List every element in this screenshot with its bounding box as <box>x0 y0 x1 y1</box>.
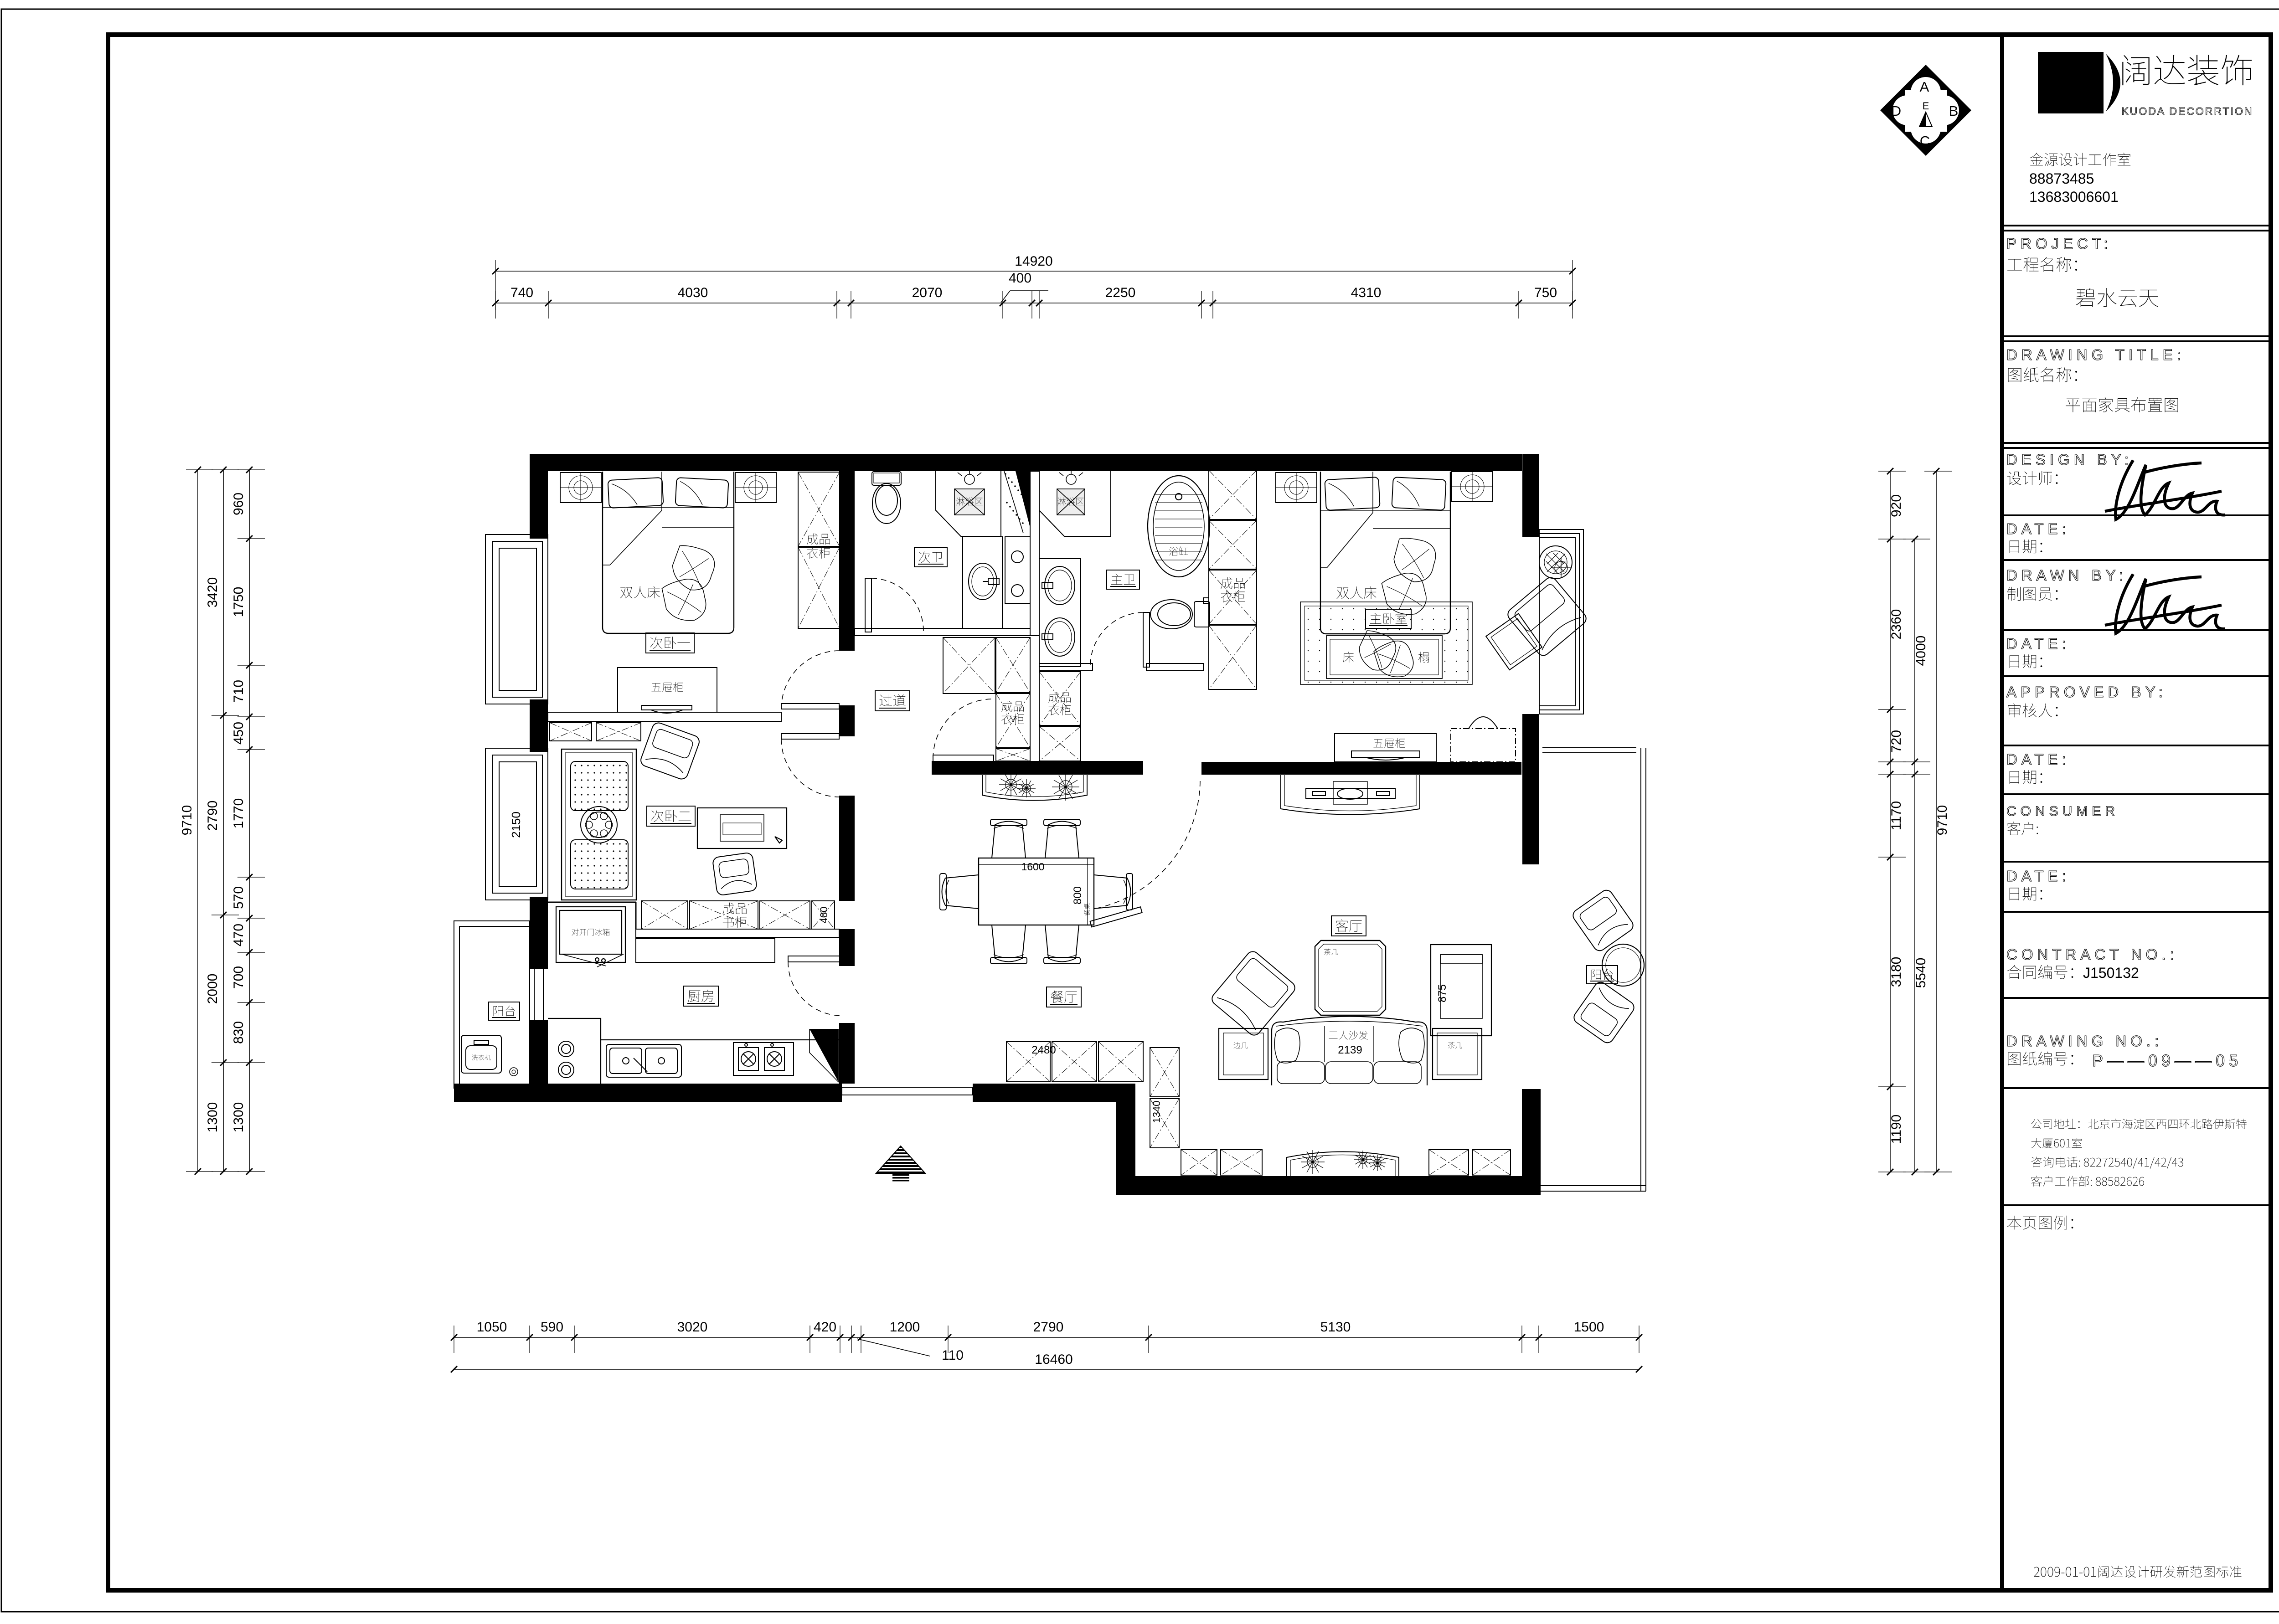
svg-text:DRAWN BY:: DRAWN BY: <box>2006 567 2127 584</box>
svg-text:1500: 1500 <box>1574 1320 1604 1335</box>
svg-text:700: 700 <box>231 966 246 989</box>
svg-text:CONTRACT NO.:: CONTRACT NO.: <box>2006 946 2178 963</box>
svg-text:1600: 1600 <box>1021 861 1044 873</box>
svg-text:CONSUMER: CONSUMER <box>2006 804 2119 819</box>
svg-text:2790: 2790 <box>1033 1320 1064 1335</box>
svg-text:830: 830 <box>231 1021 246 1044</box>
svg-text:4000: 4000 <box>1913 636 1928 666</box>
svg-text:110: 110 <box>942 1348 964 1363</box>
svg-text:B: B <box>1949 103 1959 119</box>
svg-text:2070: 2070 <box>912 285 943 300</box>
svg-text:720: 720 <box>1889 730 1904 753</box>
svg-text:E: E <box>1923 100 1929 112</box>
svg-text:710: 710 <box>231 680 246 703</box>
svg-text:2360: 2360 <box>1889 609 1904 640</box>
svg-text:3420: 3420 <box>205 577 220 608</box>
svg-text:DATE:: DATE: <box>2006 868 2070 884</box>
svg-text:420: 420 <box>814 1320 836 1335</box>
svg-text:4030: 4030 <box>678 285 708 300</box>
svg-text:DRAWING NO.:: DRAWING NO.: <box>2006 1033 2163 1049</box>
svg-text:DRAWING TITLE:: DRAWING TITLE: <box>2006 346 2185 363</box>
svg-text:570: 570 <box>231 886 246 909</box>
svg-text:KUODA DECORRTION: KUODA DECORRTION <box>2121 105 2253 117</box>
svg-text:14920: 14920 <box>1015 254 1052 269</box>
svg-text:400: 400 <box>1009 271 1031 286</box>
svg-text:DATE:: DATE: <box>2006 751 2070 768</box>
svg-text:C: C <box>1920 133 1930 149</box>
svg-text:2250: 2250 <box>1105 285 1136 300</box>
svg-text:1770: 1770 <box>231 798 246 829</box>
svg-text:4310: 4310 <box>1351 285 1382 300</box>
svg-text:750: 750 <box>1534 285 1557 300</box>
svg-text:470: 470 <box>231 924 246 946</box>
svg-text:D: D <box>1891 103 1901 119</box>
svg-text:2139: 2139 <box>1338 1044 1362 1056</box>
svg-text:5130: 5130 <box>1320 1320 1351 1335</box>
svg-text:88873485: 88873485 <box>2029 170 2094 187</box>
svg-text:APPROVED BY:: APPROVED BY: <box>2006 684 2167 700</box>
svg-text:16460: 16460 <box>1035 1352 1072 1367</box>
svg-text:1170: 1170 <box>1889 801 1904 831</box>
svg-text:1340: 1340 <box>1151 1101 1162 1123</box>
svg-text:1300: 1300 <box>205 1102 220 1133</box>
svg-text:DATE:: DATE: <box>2006 520 2070 537</box>
svg-text:2150: 2150 <box>509 812 523 838</box>
svg-text:920: 920 <box>1889 494 1904 517</box>
svg-text:DATE:: DATE: <box>2006 635 2070 652</box>
svg-text:5540: 5540 <box>1913 958 1928 988</box>
svg-text:590: 590 <box>541 1320 563 1335</box>
svg-text:1750: 1750 <box>231 587 246 617</box>
svg-text:1050: 1050 <box>477 1320 507 1335</box>
svg-text:450: 450 <box>231 722 246 745</box>
svg-text:740: 740 <box>510 285 533 300</box>
svg-text:960: 960 <box>231 493 246 515</box>
svg-text:1200: 1200 <box>890 1320 920 1335</box>
svg-text:DESIGN BY:: DESIGN BY: <box>2006 451 2133 468</box>
svg-text:3020: 3020 <box>677 1320 708 1335</box>
svg-text:13683006601: 13683006601 <box>2029 189 2119 205</box>
svg-text:9710: 9710 <box>1935 805 1950 836</box>
svg-text:1190: 1190 <box>1889 1115 1904 1144</box>
svg-text:2790: 2790 <box>205 801 220 831</box>
svg-text:875: 875 <box>1436 984 1449 1002</box>
svg-text:A: A <box>1920 79 1929 95</box>
svg-text:9710: 9710 <box>180 805 195 836</box>
svg-text:3180: 3180 <box>1889 957 1904 987</box>
svg-text:400: 400 <box>818 907 830 924</box>
svg-text:J150132: J150132 <box>2083 965 2139 981</box>
svg-text:PROJECT:: PROJECT: <box>2006 235 2112 252</box>
svg-text:P——09——05: P——09——05 <box>2092 1051 2242 1070</box>
svg-text:2480: 2480 <box>1031 1044 1056 1056</box>
svg-text:2000: 2000 <box>205 974 220 1004</box>
svg-text:1300: 1300 <box>231 1102 246 1133</box>
svg-text:800: 800 <box>1072 886 1084 905</box>
